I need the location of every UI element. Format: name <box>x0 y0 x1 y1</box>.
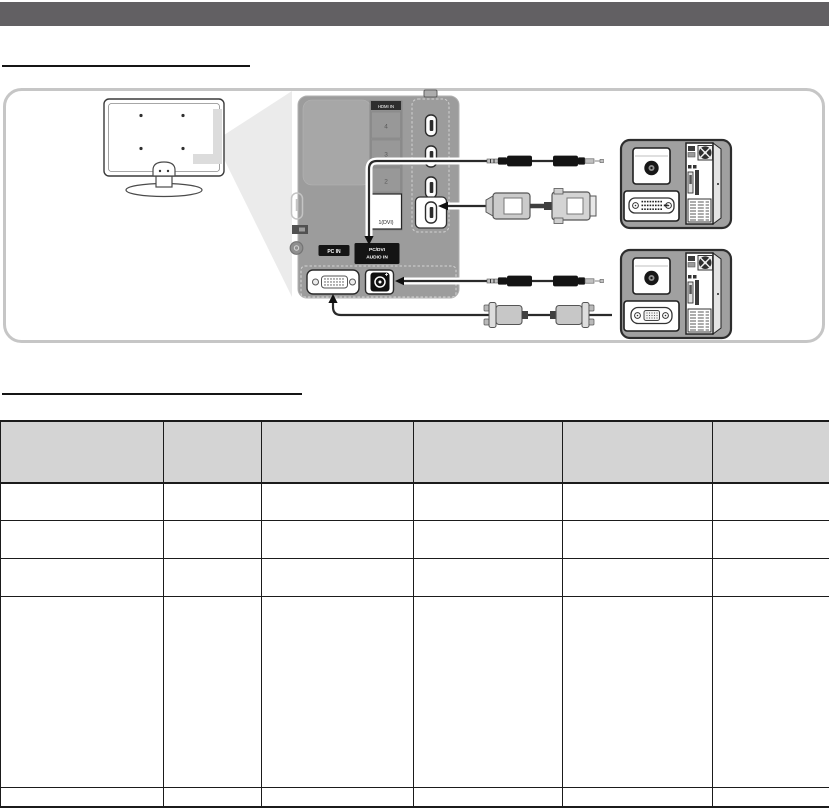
hdmi-port-4-text: 4 <box>384 124 388 131</box>
table-cell <box>713 596 829 787</box>
table-cell <box>262 596 414 787</box>
pc-rear-box-dvi <box>621 140 731 228</box>
pc-dvi-audio-in-port-icon <box>366 270 394 294</box>
table-cell <box>414 483 563 520</box>
table-row <box>1 787 829 807</box>
table-cell <box>1 520 164 558</box>
table-cell <box>414 558 563 596</box>
pc-tower-rear-icon <box>686 143 721 224</box>
header-cell <box>713 421 829 483</box>
vga-out-port-icon <box>624 301 679 331</box>
hdmi-dvi-port-icon <box>426 202 437 223</box>
pc-dvi-audio-in-label <box>355 243 400 264</box>
header-cell <box>164 421 262 483</box>
table-cell <box>164 596 262 787</box>
pc-connection-diagram-svg: HDMI IN 4 3 2 1(DVI) PC IN PC/DVI AUDIO <box>0 85 829 347</box>
table-cell <box>164 520 262 558</box>
table-cell <box>262 787 414 807</box>
pc-in-vga-port-icon <box>307 270 359 294</box>
header-cell <box>563 421 713 483</box>
tv-back-panel: HDMI IN 4 3 2 1(DVI) PC IN PC/DVI AUDIO <box>290 90 459 298</box>
table-cell <box>1 787 164 807</box>
table-cell <box>713 558 829 596</box>
table-cell <box>262 520 414 558</box>
hdmi-port-2-text: 2 <box>384 179 388 186</box>
page-header-bar <box>0 2 829 26</box>
header-cell <box>262 421 414 483</box>
table-cell <box>262 558 414 596</box>
table-row <box>1 596 829 787</box>
pc-dvi-audio-line1-text: PC/DVI <box>369 247 386 253</box>
hdmi-port-3-text: 3 <box>384 152 388 159</box>
section-heading-underline-display-modes <box>2 393 302 395</box>
table-cell <box>563 558 713 596</box>
table-cell <box>164 558 262 596</box>
header-cell <box>414 421 563 483</box>
table-cell <box>414 520 563 558</box>
pc-connection-diagram: HDMI IN 4 3 2 1(DVI) PC IN PC/DVI AUDIO <box>0 85 829 347</box>
display-modes-table <box>0 420 829 808</box>
hdmi-port-1-text: 1(DVI) <box>379 220 394 226</box>
table-row <box>1 520 829 558</box>
hdmi-in-label-text: HDMI IN <box>378 104 394 109</box>
table-cell <box>262 483 414 520</box>
table-header-row <box>1 421 829 483</box>
table-cell <box>1 558 164 596</box>
dvi-out-port-icon <box>624 191 679 221</box>
pc-in-label-text: PC IN <box>327 249 341 255</box>
pc-rear-box-vga <box>621 250 731 338</box>
pc-dvi-audio-line2-text: AUDIO IN <box>366 255 388 261</box>
table-cell <box>414 596 563 787</box>
table-row <box>1 483 829 520</box>
table-cell <box>1 596 164 787</box>
table-cell <box>1 483 164 520</box>
table-cell <box>414 787 563 807</box>
table-row <box>1 558 829 596</box>
table-cell <box>563 787 713 807</box>
header-cell <box>1 421 164 483</box>
common-interface-icon <box>424 90 437 97</box>
table-cell <box>563 520 713 558</box>
section-heading-underline-connecting <box>2 65 250 67</box>
table-cell <box>164 787 262 807</box>
table-cell <box>713 483 829 520</box>
table-cell <box>563 596 713 787</box>
audio-out-port-icon <box>633 148 670 184</box>
hdmi-connector-icons <box>426 115 437 198</box>
table-cell <box>164 483 262 520</box>
table-cell <box>713 520 829 558</box>
table-cell <box>563 483 713 520</box>
table-cell <box>713 787 829 807</box>
